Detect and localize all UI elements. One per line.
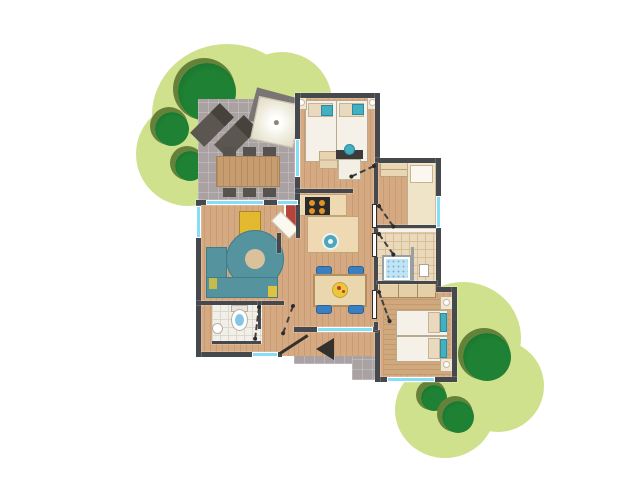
tree <box>442 401 474 433</box>
window <box>387 377 435 382</box>
floor-plan-canvas <box>0 0 640 480</box>
wall <box>452 287 457 382</box>
interior-wall <box>377 281 437 284</box>
wardrobe <box>379 283 436 298</box>
burner <box>319 208 325 214</box>
shower-tray <box>386 259 408 278</box>
window <box>317 327 373 332</box>
burner <box>309 208 315 214</box>
outdoor-chair <box>243 188 256 197</box>
washbasin <box>344 144 355 155</box>
interior-wall <box>374 322 378 330</box>
interior-wall <box>374 163 378 204</box>
interior-wall <box>196 301 284 305</box>
window <box>252 352 278 357</box>
toilet-water <box>235 314 244 326</box>
window <box>277 200 298 205</box>
sofa-cushion <box>268 286 277 297</box>
bathroom-shelf <box>378 228 437 233</box>
dresser <box>380 162 408 177</box>
kitchen-sink-drain <box>328 239 333 244</box>
food <box>337 286 341 290</box>
outdoor-chair <box>243 147 256 156</box>
tree <box>463 333 511 381</box>
lamp <box>443 361 450 368</box>
lamp <box>443 299 450 306</box>
interior-wall <box>212 341 261 344</box>
bed-runner <box>321 105 333 116</box>
entrance-arrow-icon <box>316 338 334 360</box>
pillow <box>410 165 433 183</box>
bathroom-washbasin <box>419 264 429 277</box>
pillow <box>428 338 440 359</box>
burner <box>309 200 315 206</box>
interior-wall <box>374 257 378 290</box>
outdoor-chair <box>263 147 276 156</box>
shower-partition <box>411 247 414 282</box>
bed-runner <box>440 339 447 358</box>
window <box>436 196 441 228</box>
hand-basin <box>212 323 223 334</box>
bed-runner <box>352 104 364 115</box>
outdoor-dining-table <box>216 156 280 187</box>
burner <box>319 200 325 206</box>
outdoor-chair <box>223 147 236 156</box>
window <box>206 200 264 205</box>
tree <box>421 385 447 411</box>
outdoor-chair <box>223 188 236 197</box>
wall <box>375 330 380 382</box>
pillow <box>428 312 440 333</box>
wall <box>295 93 380 98</box>
food <box>342 290 345 293</box>
interior-wall <box>277 233 281 253</box>
dining-chair <box>348 305 364 314</box>
round-rug-center <box>245 249 265 269</box>
interior-wall <box>296 205 300 238</box>
wall <box>375 93 380 163</box>
wall <box>375 158 441 163</box>
bed-runner <box>440 313 447 332</box>
interior-wall <box>295 189 353 193</box>
window <box>196 206 201 238</box>
door-leaf <box>372 204 377 228</box>
tree <box>155 112 189 146</box>
dining-chair <box>316 305 332 314</box>
window <box>295 139 300 177</box>
sofa-cushion <box>209 278 217 289</box>
plate-with-food <box>332 282 348 298</box>
outdoor-chair <box>263 188 276 197</box>
door-leaf <box>372 233 377 257</box>
interior-wall <box>377 225 437 228</box>
door-leaf <box>372 290 377 319</box>
